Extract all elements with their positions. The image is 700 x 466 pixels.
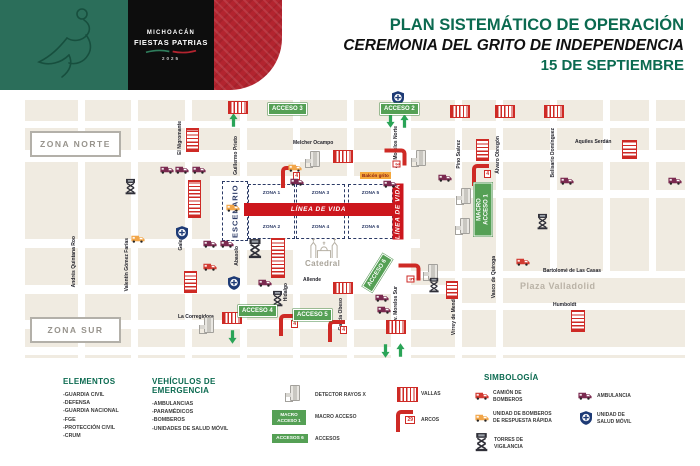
street-label-allende: Allende [303, 277, 321, 283]
acceso-5-badge: ACCESO 5 [293, 309, 332, 321]
macro-acceso-line2: ACCESO 1 [483, 194, 489, 225]
acceso-4-badge: ACCESO 4 [238, 305, 277, 317]
street [411, 190, 685, 198]
xray-detector-icon [305, 151, 320, 168]
street-label-belisario-dominguez: Belisario Domínguez [550, 128, 556, 177]
watchtower-icon [247, 238, 263, 259]
street-label-abasolo: Abasolo [234, 246, 240, 266]
legend-simbologia-title: SIMBOLOGÍA [484, 373, 539, 382]
ambulance-icon [560, 176, 574, 185]
xray-detector-icon [285, 385, 300, 402]
mobile-health-unit-icon [580, 411, 592, 425]
title-line2: CEREMONIA DEL GRITO DE INDEPENDENCIA [343, 36, 684, 56]
street-label-valentin-gomez-farias: Valentín Gómez Farías [124, 238, 130, 291]
mobile-health-unit-icon [228, 276, 240, 290]
street-label-aquiles-serdan: Aquiles Serdán [575, 139, 611, 145]
valla-icon [495, 105, 515, 118]
legend-salud-movil-label: UNIDAD DE SALUD MÓVIL [597, 412, 633, 425]
balcon-grito-label: Balcón grito [360, 172, 391, 179]
legend-arcos-label: ARCOS [421, 417, 439, 424]
street [25, 150, 685, 162]
macro-acceso-1-badge: MACRO ACCESO 1 [474, 183, 493, 237]
valla-icon [186, 128, 199, 152]
ambulance-icon [192, 165, 206, 174]
arrow-down-icon [381, 344, 390, 358]
mobile-health-unit-icon [176, 226, 188, 240]
ambulance-icon [203, 239, 217, 248]
valla-icon [397, 387, 418, 402]
fire-truck-icon [516, 257, 530, 266]
street-label-andres-quintana-roo: Andrés Quintana Roo [71, 236, 77, 287]
macro-acceso-line1: MACRO [476, 198, 482, 221]
dancer-illustration [0, 0, 128, 90]
street-label-bartolome: Bartolomé de Las Casas [543, 268, 601, 274]
macro-acceso-badge: MACROACCESO 1 [272, 410, 306, 425]
xray-detector-icon [455, 218, 470, 235]
valla-icon [271, 238, 285, 278]
ambulance-icon [377, 305, 391, 314]
legend-camion-label: CAMIÓN DE BOMBEROS [493, 390, 531, 403]
accesos-badge: ACCESOS 6 [272, 434, 308, 443]
xray-detector-icon [411, 150, 426, 167]
logo-ribbon-icon [139, 49, 203, 54]
arrow-up-icon [229, 113, 238, 127]
ambulance-icon [290, 177, 304, 186]
zona-sur-label: ZONA SUR [30, 317, 121, 343]
ambulance-icon [160, 165, 174, 174]
legend-elementos-items: -GUARDIA CIVIL-DEFENSA-GUARDIA NACIONAL-… [63, 391, 119, 440]
watchtower-icon [474, 432, 489, 452]
fire-truck-icon [203, 262, 217, 271]
valla-icon [228, 101, 248, 114]
legend-vallas-label: VALLAS [421, 391, 441, 398]
header-pattern-block [214, 0, 282, 90]
zone-4-label: ZONA 4 [297, 225, 344, 230]
title-line1: PLAN SISTEMÁTICO DE OPERACIÓN [343, 15, 684, 36]
ambulance-icon [258, 278, 272, 287]
zone-6-label: ZONA 6 [349, 225, 392, 230]
rapid-response-unit-icon [131, 234, 145, 243]
ambulance-icon [668, 176, 682, 185]
legend-accesos-label: ACCESOS [315, 436, 340, 443]
valla-icon [450, 105, 470, 118]
legend-elementos-title: ELEMENTOS [63, 377, 115, 386]
valla-icon [446, 281, 458, 299]
zone-5-label: ZONA 5 [349, 191, 392, 196]
legend-macro-label: MACRO ACCESO [315, 414, 356, 421]
cathedral-label: Catedral [305, 259, 340, 268]
ambulance-icon [383, 179, 397, 188]
valla-icon [386, 320, 406, 334]
legend-detector-label: DETECTOR RAYOS X [315, 392, 366, 399]
street-label-vasco-de-quiroga: Vasco de Quiroga [491, 256, 497, 298]
street-label-alvaro-obregon: Álvaro Obregón [495, 136, 501, 174]
logo-year: 2025 [162, 56, 180, 61]
street [25, 121, 685, 128]
watchtower-icon [428, 277, 440, 293]
xray-detector-icon [199, 317, 214, 334]
valla-icon [476, 139, 489, 161]
watchtower-icon [536, 213, 549, 230]
arrow-up-icon [396, 343, 405, 357]
legend-rru-label: UNIDAD DE BOMBEROS DE RESPUESTA RÁPIDA [493, 411, 553, 424]
legend-vehiculos-items: -AMBULANCIAS-PARAMÉDICOS-BOMBEROS-UNIDAD… [152, 400, 228, 433]
valla-icon [188, 180, 201, 218]
life-line-vertical: LÍNEA DE VIDA [393, 184, 404, 240]
street-label-guillermo-prieto: Guillermo Prieto [233, 136, 239, 175]
ambulance-icon [438, 173, 452, 182]
valla-icon [544, 105, 564, 118]
street-label-humboldt: Humboldt [553, 302, 576, 308]
street-label-pino-suarez: Pino Suárez [456, 140, 462, 169]
title-line3: 15 DE SEPTIEMBRE [343, 56, 684, 76]
cathedral-icon [306, 234, 342, 259]
arrow-down-icon [386, 114, 395, 128]
zone-1-label: ZONA 1 [249, 191, 294, 196]
street [25, 347, 685, 355]
ambulance-icon [375, 293, 389, 302]
poster-title: PLAN SISTEMÁTICO DE OPERACIÓN CEREMONIA … [343, 15, 684, 76]
header-logo-block: MICHOACÁN FIESTAS PATRIAS 2025 [128, 0, 214, 90]
plaza-valladolid-label: Plaza Valladolid [520, 281, 596, 291]
valla-icon [333, 150, 353, 163]
rapid-response-unit-icon [226, 203, 240, 212]
zona-norte-label: ZONA NORTE [30, 131, 121, 157]
xray-detector-icon [456, 188, 471, 205]
operational-plan-poster: MICHOACÁN FIESTAS PATRIAS 2025 PLAN SIST… [0, 0, 700, 466]
ambulance-icon [220, 239, 234, 248]
arch-icon: 5 [399, 264, 421, 281]
street-label-nigromante: El Nigromante [177, 121, 183, 155]
life-line-horizontal: LÍNEA DE VIDA [244, 203, 393, 216]
legend-vehiculos-title: VEHÍCULOS DE EMERGENCIA [152, 377, 238, 395]
valla-icon [184, 271, 197, 293]
zone-3-label: ZONA 3 [297, 191, 344, 196]
street-label-av-morelos-sur: Av. Morelos Sur [393, 286, 399, 324]
watchtower-icon [124, 178, 137, 195]
acceso-2-badge: ACCESO 2 [380, 103, 419, 115]
header-green-block [0, 0, 128, 90]
valla-icon [571, 310, 585, 332]
logo-event: FIESTAS PATRIAS [134, 38, 208, 47]
arch-icon: 3 [385, 149, 407, 166]
valla-icon [622, 140, 637, 159]
arrow-up-icon [400, 114, 409, 128]
arch-icon: 29 [396, 410, 413, 432]
arrow-down-icon [228, 330, 237, 344]
zone-2-label: ZONA 2 [249, 225, 294, 230]
logo-state: MICHOACÁN [147, 30, 195, 36]
valla-icon [333, 282, 353, 294]
rapid-response-unit-icon [475, 413, 489, 422]
legend-ambulancia-label: AMBULANCIA [597, 393, 637, 400]
rapid-response-unit-icon [288, 163, 302, 172]
ambulance-icon [175, 165, 189, 174]
acceso-3-badge: ACCESO 3 [268, 103, 307, 115]
ambulance-icon [578, 391, 592, 400]
legend-torres-label: TORRES DE VIGILANCIA [494, 437, 530, 450]
arch-icon: 4 [328, 320, 345, 342]
fire-truck-icon [475, 391, 489, 400]
street-label-melchor-ocampo: Melcher Ocampo [293, 140, 333, 146]
